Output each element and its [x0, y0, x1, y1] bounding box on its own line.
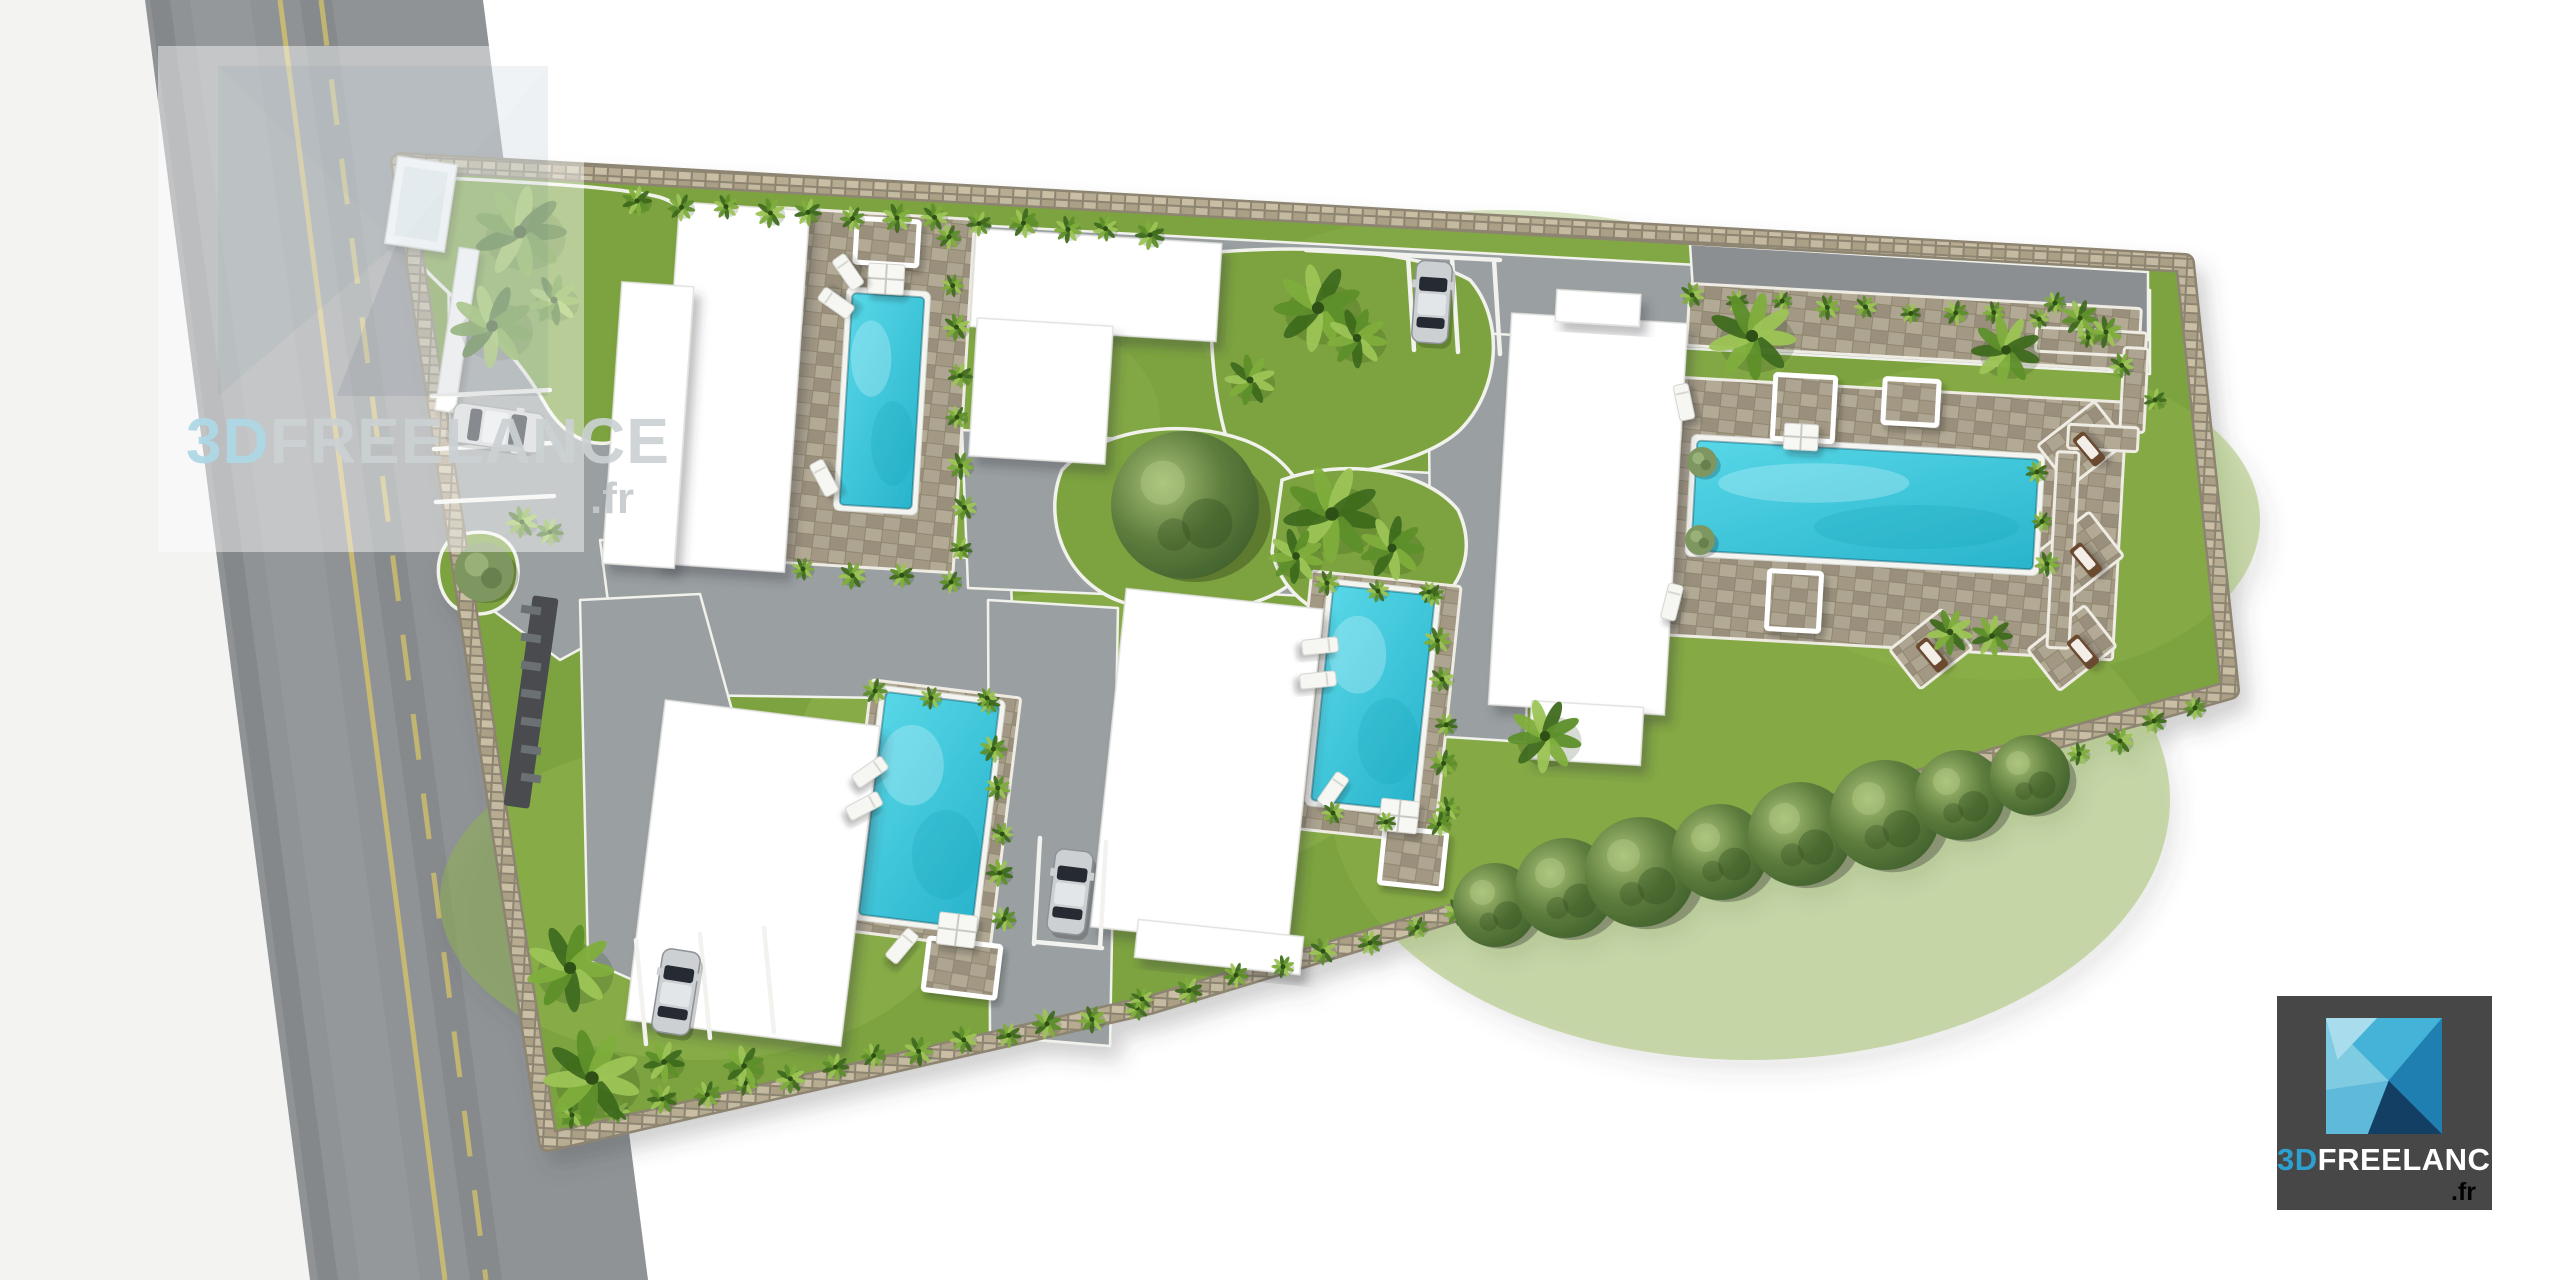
render-canvas: 3DFREELANCE .fr 3DFREELANCE .fr	[0, 0, 2560, 1280]
brand-logo-domain: .fr	[2451, 1178, 2476, 1207]
brand-logo-text: 3DFREELANCE	[2277, 1142, 2492, 1178]
site-plan-svg	[0, 0, 2560, 1280]
brand-logo-rest: FREELANCE	[2318, 1142, 2512, 1177]
brand-logo-icon	[2326, 1018, 2442, 1134]
brand-logo-3d: 3D	[2277, 1142, 2318, 1177]
brand-logo: 3DFREELANCE .fr	[2277, 996, 2492, 1210]
